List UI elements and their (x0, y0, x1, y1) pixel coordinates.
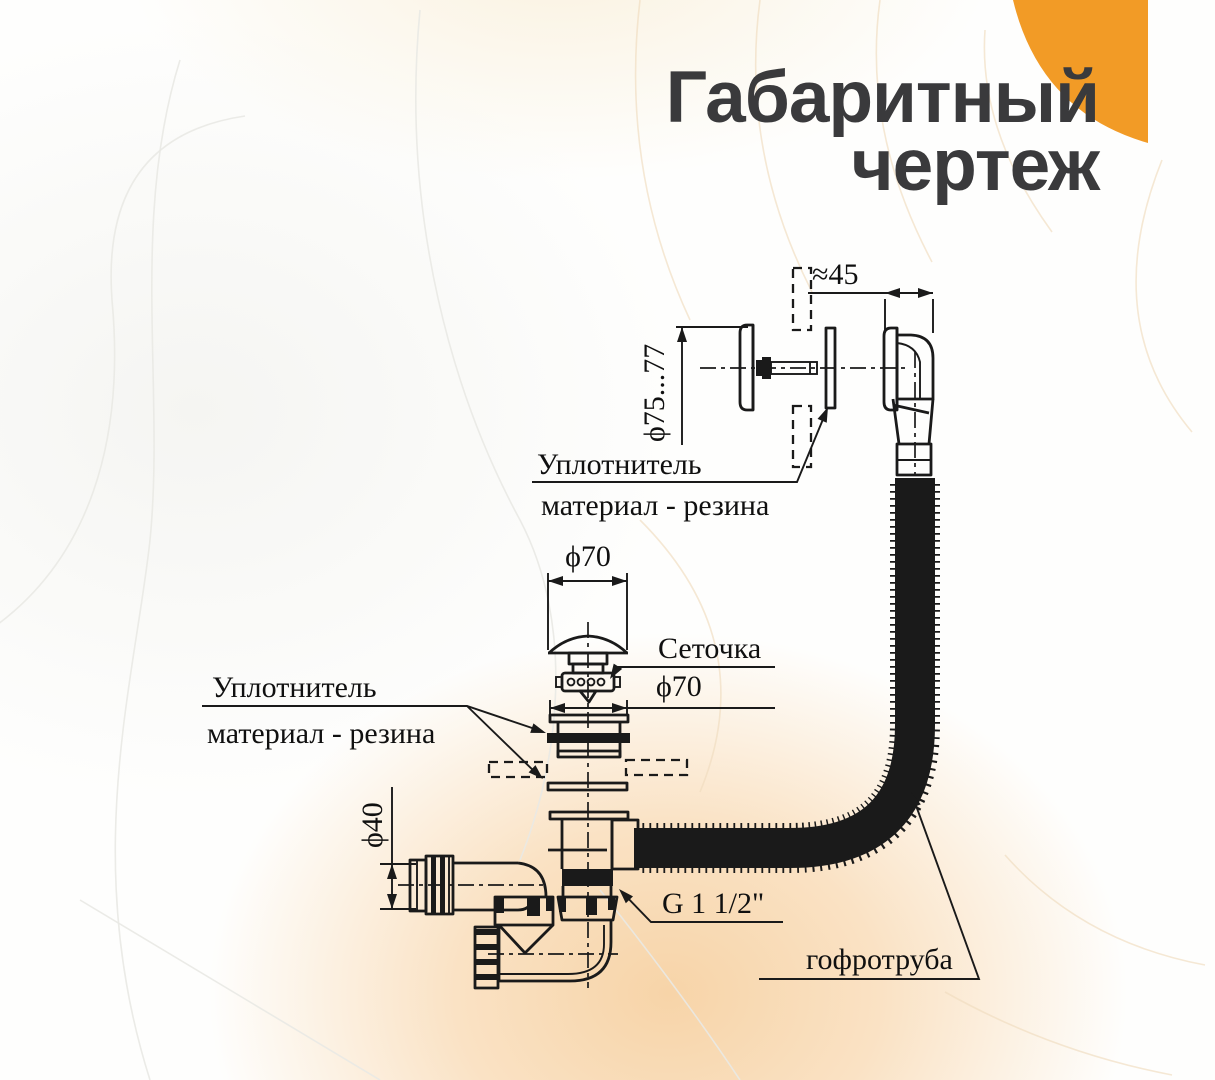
page-title: Габаритный чертеж (666, 64, 1099, 200)
side-ribbed-nut (475, 927, 498, 988)
page-title-line1: Габаритный (666, 64, 1099, 132)
thread-label: G 1 1/2" (662, 887, 764, 920)
dim-overflow-plate-value: ϕ75...77 (638, 344, 671, 442)
union-nut-left (495, 897, 553, 925)
overflow-elbow-flange (884, 328, 897, 410)
callout-seal-lower: Уплотнитель материал - резина (202, 671, 548, 783)
page-background: ≈45 ϕ75...77 Уплотнитель материал - рези… (0, 0, 1215, 1080)
union-nut-right (558, 886, 617, 920)
drain-assembly: ϕ70 ϕ70 Сеточка (489, 540, 775, 988)
bath-wall-lower (793, 406, 811, 467)
drain-upper-flange (547, 715, 630, 757)
overflow-screw (756, 357, 817, 379)
corrugated-pipe-label: гофротруба (806, 943, 953, 976)
seal-upper-material: материал - резина (541, 489, 769, 522)
dimension-overflow-offset: ≈45 (808, 258, 933, 333)
seal-lower-title: Уплотнитель (212, 671, 377, 704)
strainer-label: Сеточка (658, 632, 761, 665)
dim-overflow-offset-value: ≈45 (812, 258, 858, 291)
trap-cone (499, 925, 553, 953)
seal-lower-material: материал - резина (207, 717, 435, 750)
drain-body (548, 812, 638, 886)
bath-wall-upper (793, 268, 811, 330)
drain-thread-band (562, 869, 613, 886)
dimension-flange: ϕ70 (550, 670, 775, 715)
dimension-outlet-pipe: ϕ40 (356, 787, 416, 909)
bath-floor-right (626, 760, 687, 775)
overflow-elbow-body (893, 335, 933, 475)
overflow-assembly (700, 268, 933, 475)
dim-flange-value: ϕ70 (656, 670, 702, 703)
callout-thread: G 1 1/2" (615, 886, 783, 922)
dim-cap-value: ϕ70 (565, 540, 611, 573)
trap-body (499, 921, 611, 981)
dimension-overflow-plate: ϕ75...77 (638, 327, 748, 445)
page-title-line2: чертеж (666, 132, 1099, 200)
dim-outlet-pipe-value: ϕ40 (356, 802, 389, 848)
seal-upper-title: Уплотнитель (537, 448, 702, 481)
